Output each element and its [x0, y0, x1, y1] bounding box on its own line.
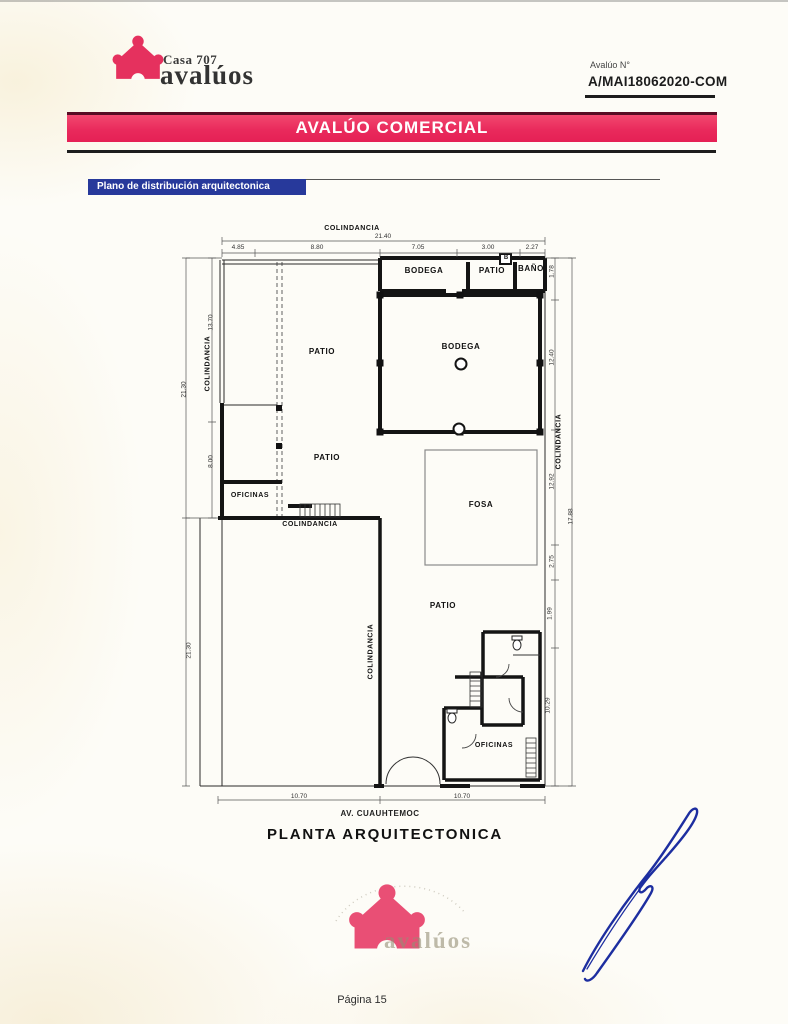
banner-rule: [67, 150, 716, 153]
room-bodega-strip: BODEGA: [394, 266, 454, 275]
banner-avaluo-comercial: AVALÚO COMERCIAL: [67, 112, 717, 142]
dim-left-inner-lower: 8.00: [208, 445, 215, 479]
watermark-brand-text: avalúos: [384, 928, 472, 954]
room-patio-lower: PATIO: [413, 601, 473, 610]
section-label-plano: Plano de distribución arquitectonica: [88, 179, 306, 195]
dim-top-seg-5: 2.27: [515, 244, 549, 251]
dim-top-seg-3: 7.05: [401, 244, 435, 251]
brand-name-line2: avalúos: [160, 64, 254, 86]
dim-top-seg-4: 3.00: [471, 244, 505, 251]
dim-right-seg-4: 2.75: [549, 545, 556, 579]
dim-right-seg-3: 12.92: [549, 465, 556, 499]
casa707-logo-icon: [112, 34, 164, 80]
dim-top-total: 21.40: [366, 233, 400, 240]
avaluo-number-value: A/MAI18062020-COM: [588, 74, 727, 89]
colindancia-divider-label: COLINDANCIA: [368, 617, 375, 687]
footer-page-number: Página 15: [322, 994, 402, 1006]
dim-left-outer-lower: 21.30: [186, 634, 193, 668]
dim-top-seg-1: 4.85: [221, 244, 255, 251]
room-bodega-main: BODEGA: [431, 342, 491, 351]
street-label: AV. CUAUHTEMOC: [320, 809, 440, 818]
room-patio-upper: PATIO: [292, 347, 352, 356]
signature: [575, 793, 715, 993]
dim-right-seg-5: 1.99: [547, 597, 554, 631]
dim-left-inner-upper: 13.70: [208, 306, 215, 340]
colindancia-right-label: COLINDANCIA: [556, 407, 563, 477]
dim-right-seg-2: 12.40: [549, 341, 556, 375]
dim-bottom-seg-1: 10.70: [282, 793, 316, 800]
scan-edge-artifact: [0, 0, 788, 2]
dim-bottom-seg-2: 10.70: [445, 793, 479, 800]
dim-top-seg-2: 8.80: [300, 244, 334, 251]
dim-right-seg-6: 10.29: [545, 689, 552, 723]
avaluo-number-label: Avalúo N°: [590, 60, 630, 70]
dim-left-outer-upper: 21.30: [181, 373, 188, 407]
dim-right-outer: 17.88: [568, 500, 575, 534]
colindancia-top-label: COLINDANCIA: [317, 225, 387, 232]
plan-caption: PLANTA ARQUITECTONICA: [255, 826, 515, 843]
room-oficinas-left: OFICINAS: [220, 492, 280, 499]
room-oficinas-bottom: OFICINAS: [464, 742, 524, 749]
boiler-box-label: B: [501, 255, 511, 261]
room-patio-mid: PATIO: [297, 453, 357, 462]
floor-plan-drawing: [175, 220, 585, 820]
room-fosa: FOSA: [451, 500, 511, 509]
scanned-appraisal-page: Casa 707 avalúos Avalúo N° A/MAI18062020…: [0, 0, 788, 1024]
avaluo-underline: [585, 95, 715, 98]
dim-right-seg-1: 1.78: [549, 255, 556, 289]
colindancia-mid-label: COLINDANCIA: [275, 521, 345, 528]
